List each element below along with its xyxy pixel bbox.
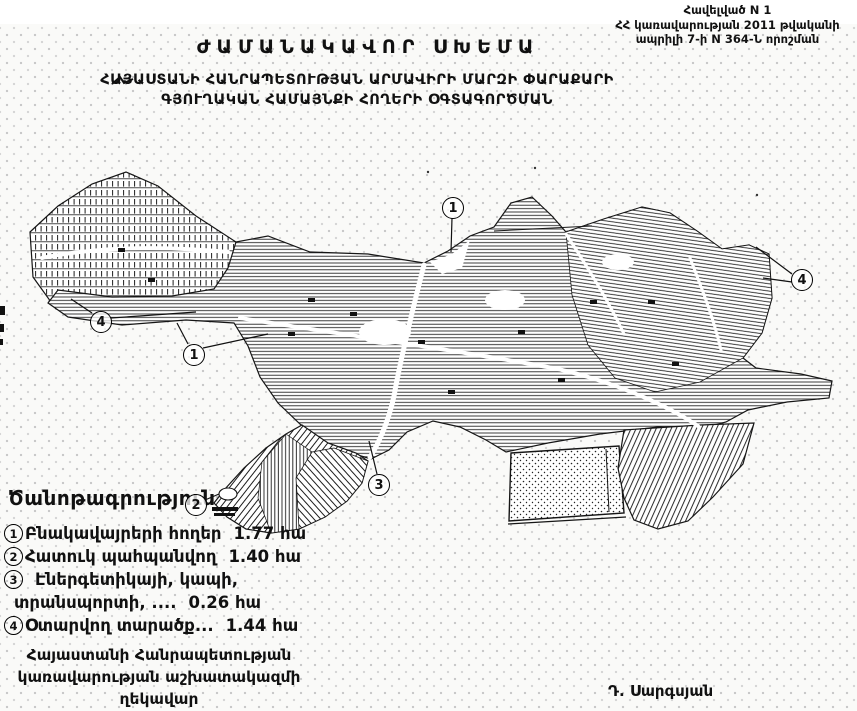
legend-marker-2: 2 [4,547,23,566]
legend-value: 1.40 հա [228,547,301,566]
legend-item-4: 4 Օտարվող տարածք... 1.44 հա [4,616,334,635]
legend-text: Օտարվող տարածք... [25,616,214,635]
legend-text: Հատուկ պահպանվող [25,547,216,566]
legend-marker-3: 3 [4,570,23,589]
map-callout-1-west: 1 [183,344,205,366]
scheme-title: ԺԱՄԱՆԱԿԱՎՈՐ ՍԽԵՄԱ [68,36,668,58]
map-callout-3-south: 3 [368,474,390,496]
legend-text: տրանսպորտի, .... [14,593,177,612]
scheme-subtitle-line: ԳՅՈՒՂԱԿԱՆ ՀԱՄԱՅՆՔԻ ՀՈՂԵՐԻ ՕԳՏԱԳՈՐԾՄԱՆ [57,90,657,110]
map-open-patch [359,319,411,345]
scheme-subtitle-line: ՀԱՅԱՍՏԱՆԻ ՀԱՆՐԱՊԵՏՈՒԹՅԱՆ ԱՐՄԱՎԻՐԻ ՄԱՐԶԻ … [57,70,657,90]
map-callout-2-southwest: 2 [185,494,207,516]
legend-item-2: 2 Հատուկ պահպանվող 1.40 հա [4,547,334,566]
map-open-patch [602,254,634,270]
legend-value: 1.77 հա [234,524,307,543]
legend-marker-4: 4 [4,616,23,635]
scheme-subtitle: ՀԱՅԱՍՏԱՆԻ ՀԱՆՐԱՊԵՏՈՒԹՅԱՆ ԱՐՄԱՎԻՐԻ ՄԱՐԶԻ … [57,70,657,111]
legend-text: Էներգետիկայի, կապի, [35,570,238,589]
appendix-line: Հավելված N 1 [600,3,855,18]
signature-name: Դ. Սարգսյան [608,682,713,700]
map-callout-4-west: 4 [90,311,112,333]
legend-item-3-continued: տրանսպորտի, .... 0.26 հա [4,593,334,612]
map-land-regions [30,172,832,533]
legend-item-3: 3 Էներգետիկայի, կապի, [4,570,334,589]
legend-value: 1.44 հա [226,616,299,635]
legend-marker-1: 1 [4,524,23,543]
legend: Ծանոթագրություն 1 Բնակավայրերի հողեր 1.7… [4,486,334,639]
map-open-patch [485,290,525,310]
appendix-line: ՀՀ կառավարության 2011 թվականի [600,18,855,33]
leader-top-1 [451,218,452,252]
footer-office-line: ղեկավար [14,688,304,710]
scanned-document-sheet: 1 4 1 4 2 3 Հավելված N 1 ՀՀ կառավարությա… [0,0,857,711]
map-callout-1-top: 1 [442,197,464,219]
footer-office-title: Հայաստանի Հանրապետության կառավարության ա… [14,644,304,710]
map-region-southeast-fan [618,423,754,529]
footer-office-line: Հայաստանի Հանրապետության [14,644,304,666]
legend-text: Բնակավայրերի հողեր [25,524,222,543]
footer-office-line: կառավարության աշխատակազմի [14,666,304,688]
legend-heading: Ծանոթագրություն [8,486,334,510]
map-callout-4-east: 4 [791,269,813,291]
legend-value: 0.26 հա [189,593,262,612]
legend-item-1: 1 Բնակավայրերի հողեր 1.77 հա [4,524,334,543]
leader-west-1a [177,323,188,344]
